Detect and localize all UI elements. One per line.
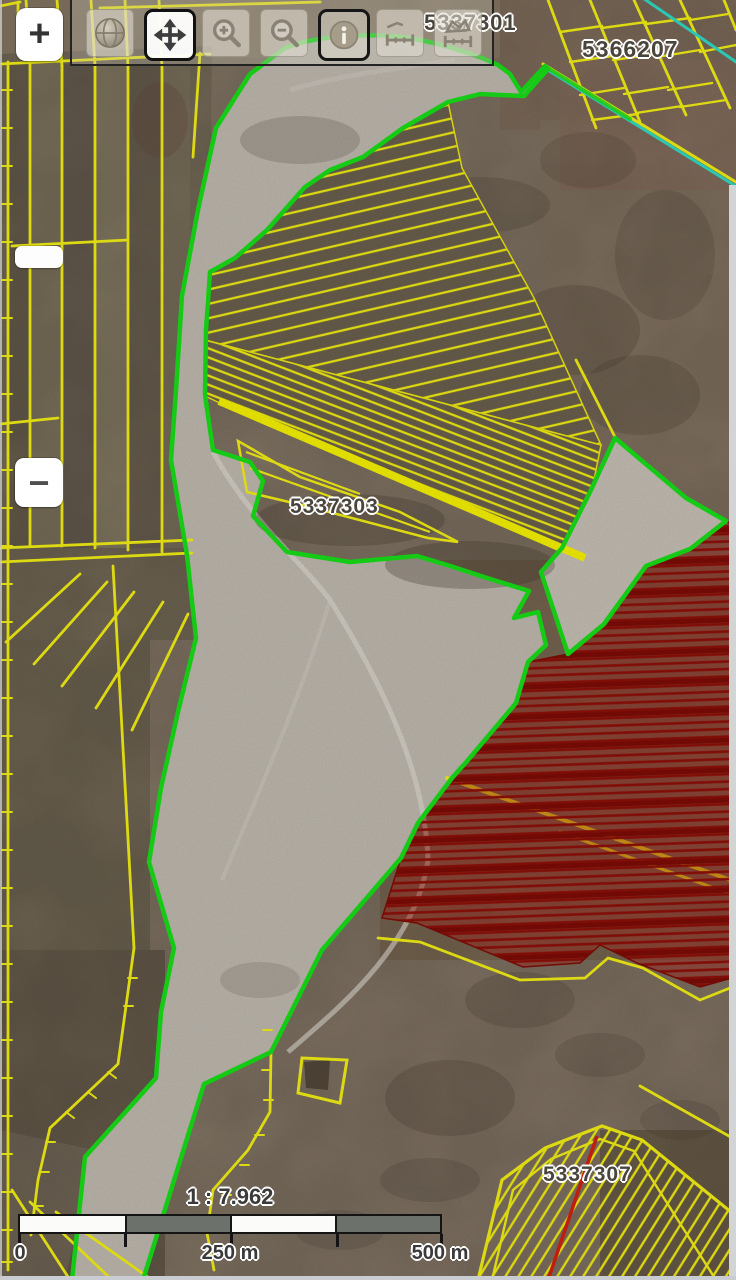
map-edge-right	[729, 185, 736, 1280]
zoom-in-tool-button[interactable]	[202, 9, 250, 57]
scale-bar-segment	[125, 1216, 230, 1232]
scale-label-250: 250 m	[185, 1242, 275, 1265]
zoom-slider-handle[interactable]	[15, 246, 63, 268]
parcel-label: 5337307	[543, 1163, 632, 1187]
scale-bar-segment	[20, 1216, 125, 1232]
info-icon	[327, 18, 361, 52]
measure-distance-icon	[383, 16, 417, 50]
scale-label-500: 500 m	[395, 1242, 485, 1265]
info-tool-button[interactable]	[318, 9, 370, 61]
scale-bar	[18, 1214, 442, 1234]
measure-area-tool-button[interactable]	[434, 9, 482, 57]
scale-tick	[124, 1234, 127, 1247]
map-canvas[interactable]	[0, 0, 736, 1280]
scale-ratio-label: 1 : 7.962	[180, 1184, 280, 1210]
zoom-out-icon	[267, 16, 301, 50]
zoom-in-button[interactable]: +	[16, 8, 63, 61]
measure-distance-tool-button[interactable]	[376, 9, 424, 57]
scale-bar-segment	[230, 1216, 335, 1232]
globe-icon	[93, 16, 127, 50]
map-edge-bottom	[0, 1276, 736, 1280]
zoom-in-icon	[209, 16, 243, 50]
zoom-out-button[interactable]: −	[15, 458, 63, 507]
zoom-out-tool-button[interactable]	[260, 9, 308, 57]
scale-label-0: 0	[8, 1242, 32, 1265]
measure-area-icon	[441, 16, 475, 50]
map-edge-left	[0, 0, 2, 1280]
parcel-label: 5337303	[290, 495, 379, 519]
scale-tick	[336, 1234, 339, 1247]
pan-tool-button[interactable]	[144, 9, 196, 61]
parcel-label: 5366207	[582, 36, 679, 63]
map-viewport: 5337301 5366207 5337303 5337307	[0, 0, 736, 1280]
globe-tool-button[interactable]	[86, 9, 134, 57]
pan-icon	[153, 18, 187, 52]
terrain-grain-noise	[0, 0, 736, 1280]
scale-bar-segment	[335, 1216, 440, 1232]
